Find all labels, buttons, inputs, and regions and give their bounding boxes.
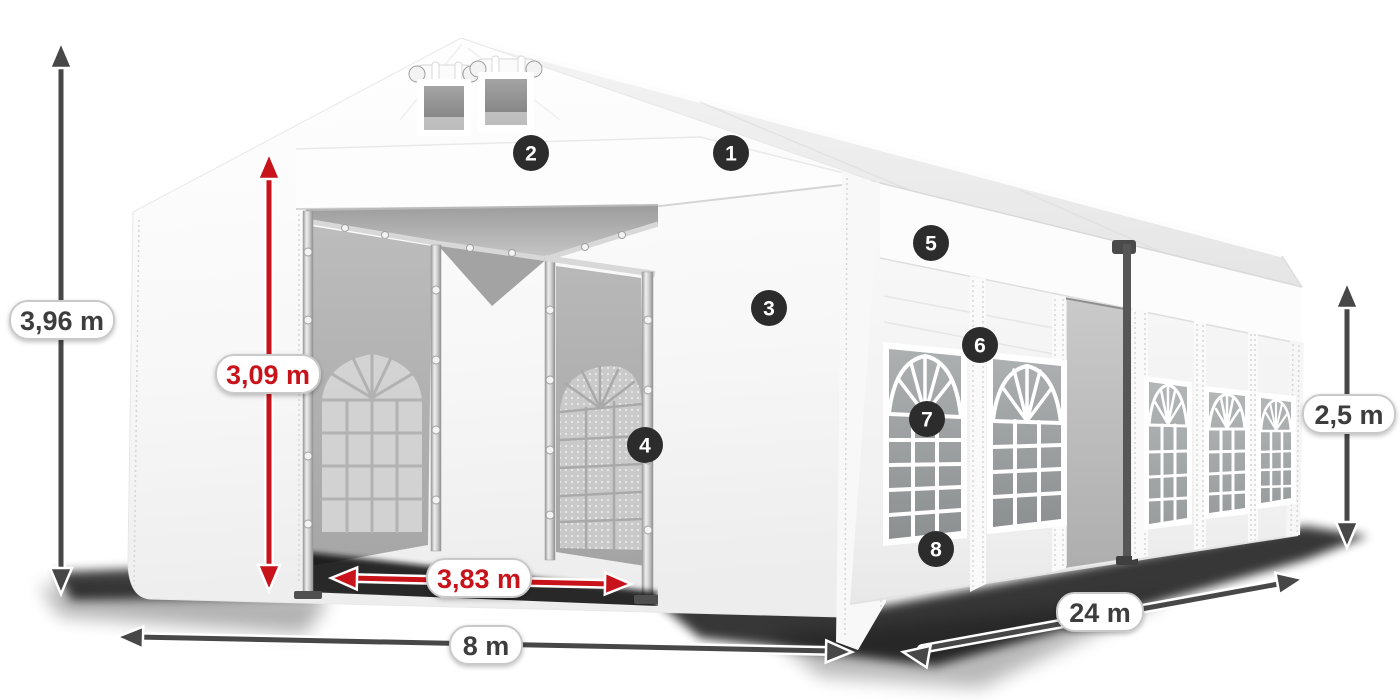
total-height-value: 3,96 m (20, 306, 104, 336)
entrance-door-left (311, 226, 441, 566)
truss-clamp (582, 244, 589, 251)
post-clamp (546, 511, 554, 519)
vent-inner-bar (485, 112, 527, 125)
vent-window-left (409, 62, 479, 136)
callout-number: 2 (525, 143, 537, 166)
truss-clamp (382, 232, 389, 239)
side-door-opening (1064, 298, 1130, 568)
label-side-length: 24 m (1057, 593, 1143, 631)
callout-number: 1 (725, 143, 737, 166)
post-clamp (432, 356, 440, 364)
post-clamp (644, 386, 652, 394)
tent (128, 37, 1304, 650)
label-entrance-height: 3,09 m (216, 355, 320, 393)
callout-badge-6[interactable]: 6 (962, 327, 998, 363)
side-window-2 (987, 352, 1067, 534)
post-foot-plate (634, 595, 662, 604)
post-clamp (432, 496, 440, 504)
callout-badge-4[interactable]: 4 (627, 427, 663, 463)
post-clamp (546, 446, 554, 454)
post-clamp (304, 248, 312, 256)
label-front-width: 8 m (450, 626, 522, 664)
callout-badge-2[interactable]: 2 (513, 135, 549, 171)
callout-badge-1[interactable]: 1 (713, 135, 749, 171)
post-clamp (546, 376, 554, 384)
side-window-1 (883, 342, 967, 546)
side-door-pole (1123, 244, 1131, 562)
arrowhead-right (1275, 568, 1305, 594)
arrowhead-left (117, 626, 143, 649)
callout-number: 5 (925, 233, 937, 256)
label-entrance-width: 3,83 m (427, 559, 531, 597)
door-frame-post (303, 211, 313, 593)
truss-clamp (509, 250, 516, 257)
vent-window-right (470, 56, 542, 132)
callout-badge-8[interactable]: 8 (918, 531, 954, 567)
post-clamp (546, 306, 554, 314)
entrance-height-value: 3,09 m (226, 360, 310, 390)
callout-badge-5[interactable]: 5 (913, 225, 949, 261)
tent-dimension-diagram: 3,96 m 3,09 m 3,83 m 8 m 24 m 2,5 m 1 (0, 0, 1400, 700)
bay-strap (970, 276, 986, 592)
callout-number: 4 (639, 435, 651, 458)
side-window-5 (1256, 392, 1296, 509)
vent-inner-bar (424, 117, 464, 130)
post-clamp (304, 316, 312, 324)
side-height-value: 2,5 m (1314, 400, 1383, 430)
diagram-canvas: 3,96 m 3,09 m 3,83 m 8 m 24 m 2,5 m 1 (0, 0, 1400, 700)
callout-number: 3 (763, 298, 775, 321)
truss-clamp (467, 245, 474, 252)
callout-badge-7[interactable]: 7 (909, 401, 945, 437)
side-length-value: 24 m (1069, 598, 1131, 628)
post-clamp (644, 316, 652, 324)
callout-number: 6 (974, 335, 986, 358)
entrance-width-value: 3,83 m (437, 564, 521, 594)
truss-clamp (619, 232, 626, 239)
callout-number: 8 (930, 539, 942, 562)
label-side-height: 2,5 m (1303, 395, 1395, 433)
post-foot-plate (294, 591, 322, 599)
post-clamp (304, 452, 312, 460)
side-window-4 (1204, 386, 1250, 519)
callout-badge-3[interactable]: 3 (751, 290, 787, 326)
post-clamp (432, 426, 440, 434)
side-window-3 (1144, 376, 1192, 530)
callout-number: 7 (921, 409, 933, 432)
arrowhead-up (50, 42, 72, 68)
truss-clamp (342, 225, 349, 232)
post-clamp (304, 520, 312, 528)
post-clamp (432, 286, 440, 294)
label-total-height: 3,96 m (10, 301, 114, 339)
arrowhead-up (1336, 282, 1358, 308)
front-width-value: 8 m (463, 631, 510, 661)
post-clamp (644, 526, 652, 534)
